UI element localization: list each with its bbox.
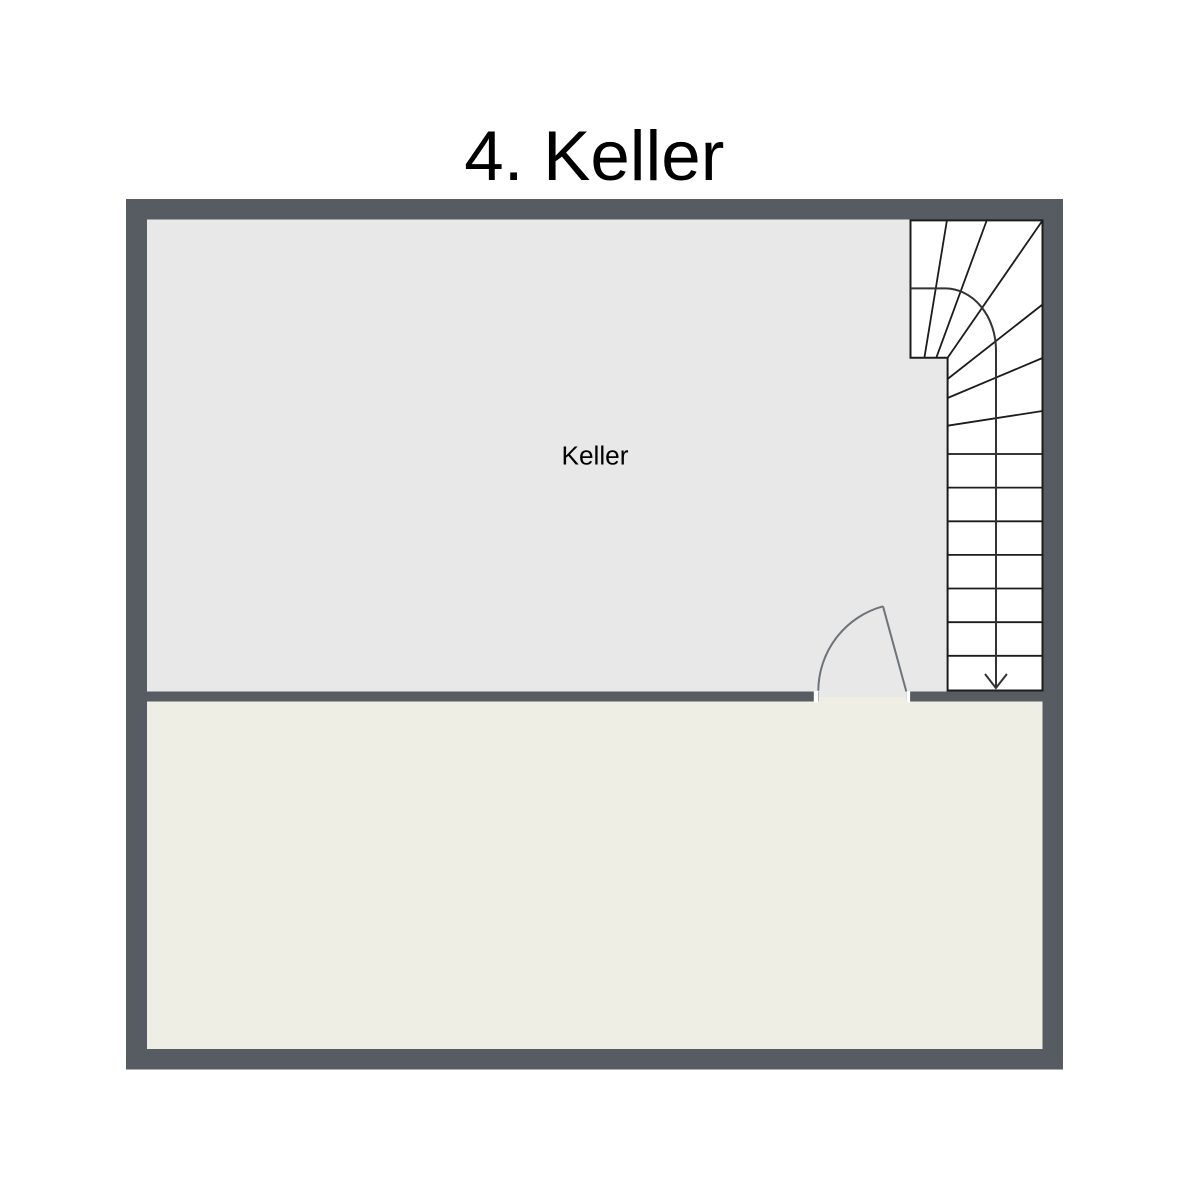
- svg-text:4. Keller: 4. Keller: [464, 117, 724, 196]
- svg-text:Keller: Keller: [562, 441, 629, 471]
